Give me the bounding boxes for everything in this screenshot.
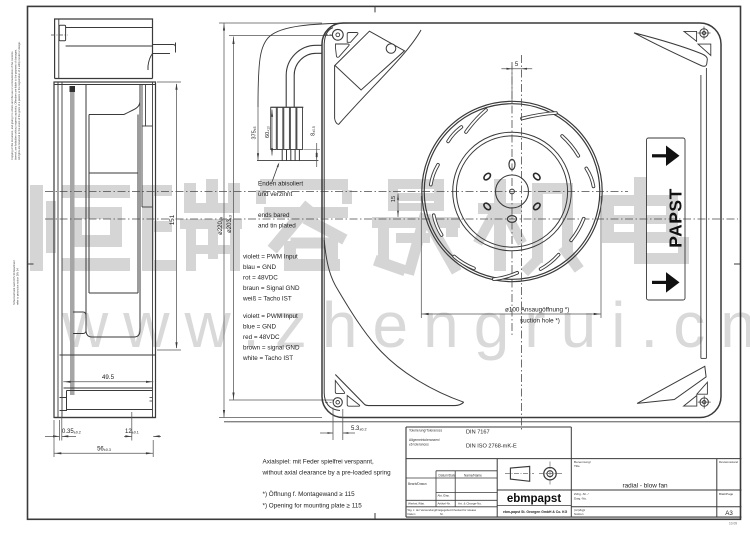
- svg-text:refer to protection notice DIN: refer to protection notice DIN 34: [16, 268, 20, 305]
- svg-text:and tin plated: and tin plated: [258, 223, 296, 230]
- svg-text:8±0.5: 8±0.5: [311, 126, 317, 136]
- svg-text:Abt./Dep.: Abt./Dep.: [438, 494, 451, 498]
- svg-text:violett = PWM Input: violett = PWM Input: [243, 254, 298, 261]
- svg-text:Dwg.-No.: Dwg.-No.: [574, 496, 587, 500]
- svg-text:rot = 48VDC: rot = 48VDC: [243, 275, 278, 282]
- svg-text:375±5: 375±5: [252, 126, 258, 139]
- svg-text:ends bared: ends bared: [258, 212, 290, 219]
- svg-text:Wg. z. der Verwendung/Freigege: Wg. z. der Verwendung/Freigegeben/Checke…: [408, 508, 477, 512]
- svg-text:49.5: 49.5: [102, 374, 115, 381]
- svg-text:All rights are reserved in the: All rights are reserved in the event of …: [17, 41, 21, 160]
- svg-text:10.09: 10.09: [729, 522, 737, 526]
- svg-text:Schutzvermerk nach DIN 34 beac: Schutzvermerk nach DIN 34 beachten/: [12, 260, 16, 305]
- svg-text:und verzinnt: und verzinnt: [258, 191, 293, 198]
- svg-text:Tolerierung/Tolerances: Tolerierung/Tolerances: [409, 429, 443, 433]
- svg-text:brown = signal GND: brown = signal GND: [243, 345, 300, 352]
- svg-text:blue = GND: blue = GND: [243, 324, 277, 331]
- svg-text:Art. & Charge-No.: Art. & Charge-No.: [458, 501, 482, 505]
- svg-text:Name/Name: Name/Name: [464, 473, 482, 477]
- svg-text:Werkst./Mat.: Werkst./Mat.: [408, 501, 425, 505]
- svg-text:DIN 7167: DIN 7167: [466, 430, 490, 436]
- svg-text:white = Tacho IST: white = Tacho IST: [242, 355, 293, 362]
- svg-text:Nr.: Nr.: [440, 512, 444, 516]
- svg-text:15: 15: [391, 196, 397, 202]
- svg-text:0.35±0.2: 0.35±0.2: [62, 429, 81, 435]
- svg-text:suction hole *): suction hole *): [520, 318, 560, 325]
- svg-text:Revisionsstand: Revisionsstand: [719, 460, 738, 464]
- svg-text:Axialspiel: mit Feder spielfre: Axialspiel: mit Feder spielfrei verspann…: [263, 459, 375, 466]
- svg-text:braun = Signal GND: braun = Signal GND: [243, 285, 300, 292]
- svg-text:violett = PWM Input: violett = PWM Input: [243, 313, 298, 320]
- svg-text:radial - blow fan: radial - blow fan: [622, 483, 668, 490]
- svg-text:Datum/Date: Datum/Date: [439, 473, 456, 477]
- svg-text:Artikel-Nr.: Artikel-Nr.: [438, 501, 451, 505]
- svg-text:56±0.3: 56±0.3: [97, 447, 111, 453]
- svg-text:blau = GND: blau = GND: [243, 264, 277, 271]
- svg-text:60+10: 60+10: [265, 126, 271, 138]
- svg-text:12±0.1: 12±0.1: [125, 429, 139, 435]
- svg-text:ø100 Ansaugöffnung *): ø100 Ansaugöffnung *): [505, 307, 569, 314]
- svg-text:Bearb/Drawn: Bearb/Drawn: [408, 482, 427, 486]
- svg-text:ø203±3: ø203±3: [227, 215, 233, 233]
- svg-text:ebm-papst St. Georgen GmbH & C: ebm-papst St. Georgen GmbH & Co. KG: [503, 510, 568, 514]
- svg-text:Blatt/Page: Blatt/Page: [719, 492, 734, 496]
- svg-text:without axial clearance by a p: without axial clearance by a pre-loaded …: [262, 470, 392, 477]
- svg-text:≤6 tolerances: ≤6 tolerances: [409, 442, 429, 446]
- svg-text:*) Opening for mounting plate: *) Opening for mounting plate ≥ 115: [263, 503, 363, 510]
- svg-text:PAPST: PAPST: [666, 188, 686, 248]
- svg-text:A3: A3: [725, 510, 733, 517]
- svg-text:*) Öffnung f. Montagewand ≥ 11: *) Öffnung f. Montagewand ≥ 115: [263, 490, 356, 498]
- svg-text:weiß = Tacho IST: weiß = Tacho IST: [242, 296, 292, 303]
- svg-text:Notizen: Notizen: [574, 512, 584, 516]
- svg-text:Enden abisoliert: Enden abisoliert: [258, 181, 303, 188]
- svg-text:DIN ISO 2768-mK-E: DIN ISO 2768-mK-E: [466, 444, 517, 450]
- svg-text:thereof, are forbidden without: thereof, are forbidden without express a…: [14, 49, 18, 160]
- svg-text:ø220±4: ø220±4: [218, 217, 224, 235]
- svg-text:Datum: Datum: [408, 512, 417, 516]
- svg-text:151: 151: [169, 214, 176, 225]
- svg-text:red = 48VDC: red = 48VDC: [243, 334, 280, 341]
- svg-text:ebmpapst: ebmpapst: [507, 493, 561, 505]
- svg-text:Title: Title: [574, 464, 580, 468]
- svg-text:Copying of this document, and: Copying of this document, and giving it …: [10, 51, 14, 160]
- svg-text:5.3±0.2: 5.3±0.2: [351, 426, 367, 432]
